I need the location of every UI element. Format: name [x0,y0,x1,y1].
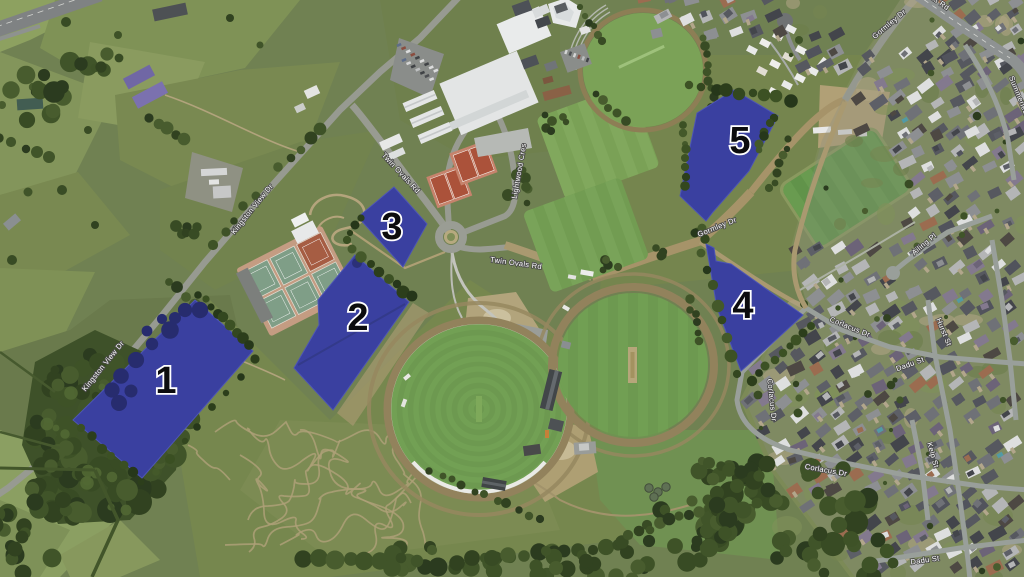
svg-text:2: 2 [347,297,368,339]
svg-text:3: 3 [381,206,402,248]
svg-text:5: 5 [729,120,750,162]
svg-text:1: 1 [155,360,176,402]
svg-text:4: 4 [732,285,753,327]
